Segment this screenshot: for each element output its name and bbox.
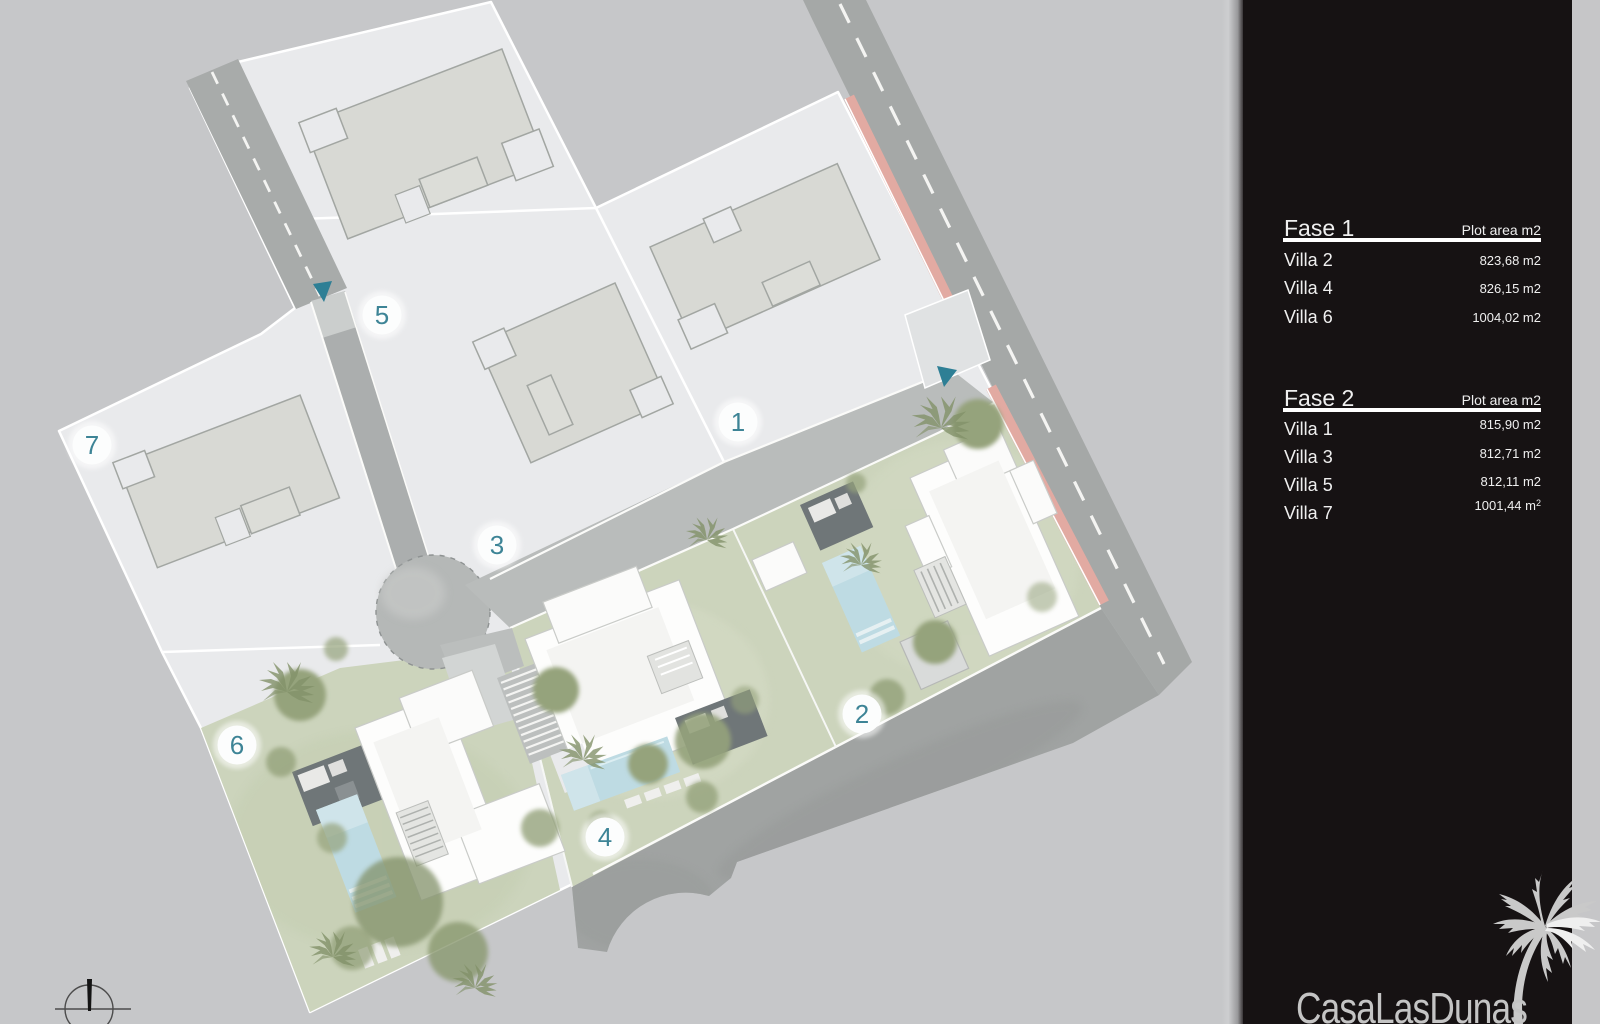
svg-text:1: 1 [731,407,745,437]
svg-text:3: 3 [490,530,504,560]
svg-text:4: 4 [598,822,612,852]
svg-text:5: 5 [375,300,389,330]
svg-text:2: 2 [855,699,869,729]
svg-text:6: 6 [230,730,244,760]
svg-text:7: 7 [85,430,99,460]
